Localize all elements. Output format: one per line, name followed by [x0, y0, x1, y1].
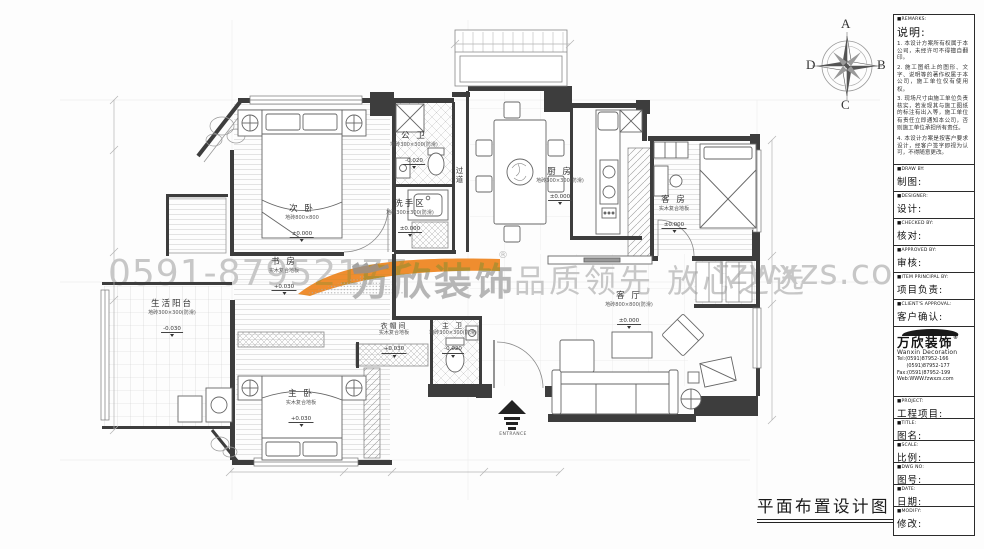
- level-mark-icon: [558, 202, 562, 205]
- title-block-row-title: ■TITLE:图名:: [894, 419, 974, 441]
- title-block-row-approved-by: ■APPROVED BY:审核:: [894, 246, 974, 273]
- title-block: ■REMARKS: 说明: 1. 本设计方案所有权属于本公司，未经许可不得擅自翻…: [893, 14, 975, 536]
- note-item: 1. 本设计方案所有权属于本公司，未经许可不得擅自翻印。: [897, 41, 968, 63]
- sheet-title-underline: [757, 519, 893, 520]
- level-mark-icon: [412, 166, 416, 169]
- level-mark-icon: [299, 424, 303, 427]
- title-block-row-date: ■DATE:日期:: [894, 485, 974, 507]
- company-tel2: (0591)87952-177: [897, 363, 967, 369]
- note-item: 4. 本设计方案是按客户要求设计，经客户签字即视为认可，不得随意更改。: [897, 136, 968, 158]
- compass-letter-north: A: [841, 16, 850, 32]
- entrance-label: ENTRANCE: [496, 432, 530, 437]
- level-mark-icon: [672, 230, 676, 233]
- room-label-master-bedroom: 主 卧 实木复合地板 +0.030: [284, 390, 317, 427]
- room-label-hallway: 过道: [455, 166, 464, 184]
- room-label-living-room: 客 厅 地砖800×800(防滑) ±0.000: [603, 292, 655, 329]
- compass-rose-icon: [812, 32, 882, 100]
- floor-plan-svg: [0, 0, 984, 549]
- room-label-master-bath: 主 卫 墙砖300×300(防滑) -0.020: [427, 322, 479, 358]
- room-label-public-bath: 公 卫 墙砖300×300(防滑) -0.020: [388, 132, 440, 169]
- level-mark-icon: [408, 234, 412, 237]
- note-item: 2. 施工图纸上的图形、文字、说明等的著作权属于本公司，施工单位仅有使用权。: [897, 65, 968, 94]
- drawing-sheet: 次 卧 地砖800×800 ±0.000 书 房 实木复合地板 +0.030 主…: [0, 0, 984, 549]
- title-block-row-principal: ■ITEM PRINCIPAL BY:项目负责:: [894, 273, 974, 300]
- room-label-secondary-bedroom: 次 卧 地砖800×800 ±0.000: [284, 205, 321, 242]
- room-label-wash-area: 洗手区 地砖300×300(防滑) ±0.000: [384, 200, 436, 237]
- level-mark-icon: [282, 292, 286, 295]
- entrance-arrow-icon: [498, 400, 526, 430]
- sheet-title-text: 平面布置设计图: [757, 493, 893, 517]
- sheet-title-underline-thin: [757, 522, 893, 523]
- top-window-bay: [455, 30, 567, 86]
- sheet-title: 平面布置设计图: [757, 493, 893, 523]
- room-label-guest-room: 客 房 实木复合地板 ±0.000: [657, 196, 690, 233]
- compass-letter-south: C: [841, 97, 850, 113]
- compass-letter-west: D: [806, 57, 815, 73]
- room-label-cloakroom: 衣帽间 实木复合地板 +0.030: [377, 322, 410, 358]
- room-label-service-balcony: 生活阳台 地砖300×300(防滑) -0.030: [146, 300, 198, 337]
- title-block-row-checked-by: ■CHECKED BY:核对:: [894, 219, 974, 246]
- title-block-notes: ■REMARKS: 说明: 1. 本设计方案所有权属于本公司，未经许可不得擅自翻…: [894, 15, 974, 165]
- company-tel1: Tel:(0591)87952-166: [897, 356, 967, 362]
- room-label-study: 书 房 实木复合地板 +0.030: [267, 258, 300, 295]
- level-mark-icon: [300, 239, 304, 242]
- title-block-row-project: ■PROJECT:工程项目:: [894, 397, 974, 419]
- title-block-row-scale: ■SCALE:比例:: [894, 441, 974, 463]
- company-web: Web:WWW.fzwxzs.com: [897, 376, 967, 382]
- title-block-row-dwg-no: ■DWG NO:图号:: [894, 463, 974, 485]
- compass-letter-east: B: [877, 57, 886, 73]
- title-block-company: 万欣装饰® Wanxin Decoration Tel:(0591)87952-…: [894, 327, 974, 397]
- company-logo-swoosh-icon: [902, 329, 960, 336]
- level-mark-icon: [392, 355, 396, 358]
- title-block-row-modify: ■MODIFY:修改:: [894, 507, 974, 529]
- title-block-row-draw-by: ■DRAW BY:制图:: [894, 165, 974, 192]
- note-item: 3. 现场尺寸由施工单位负责核实，若发现其与施工图纸的标注有出入等，施工单位有责…: [897, 96, 968, 133]
- title-block-row-designer: ■DESIGNER:设计:: [894, 192, 974, 219]
- title-block-row-client-approval: ■CLIENT'S APPROVAL:客户确认:: [894, 300, 974, 327]
- level-mark-icon: [451, 355, 455, 358]
- level-mark-icon: [627, 326, 631, 329]
- room-label-kitchen: 厨 房 地砖300×300(防滑) ±0.000: [534, 168, 586, 205]
- level-mark-icon: [170, 334, 174, 337]
